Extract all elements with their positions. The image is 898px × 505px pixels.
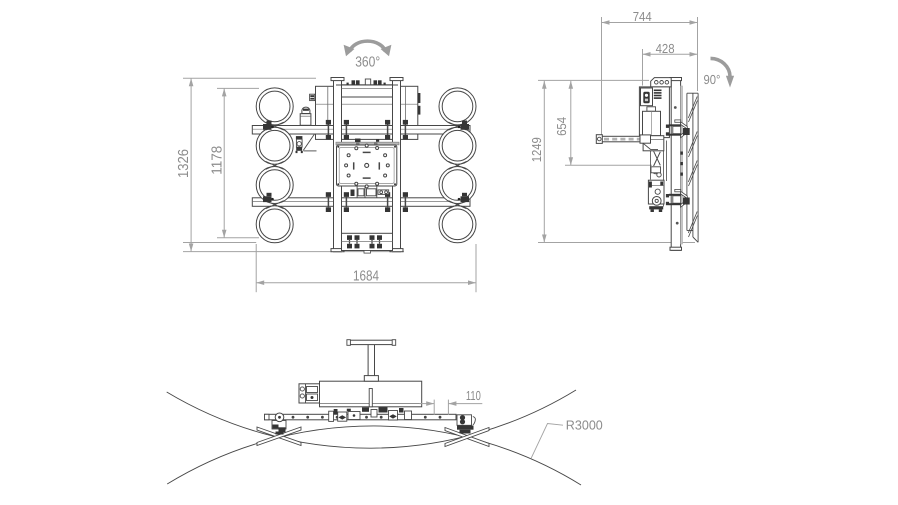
svg-text:1684: 1684 xyxy=(353,268,379,284)
svg-text:744: 744 xyxy=(633,9,652,24)
svg-text:428: 428 xyxy=(656,41,675,56)
svg-text:R3000: R3000 xyxy=(566,418,603,433)
svg-text:110: 110 xyxy=(466,388,481,403)
svg-text:1326: 1326 xyxy=(176,149,192,178)
svg-text:90°: 90° xyxy=(704,72,721,87)
svg-text:1178: 1178 xyxy=(210,146,226,175)
svg-text:654: 654 xyxy=(554,117,569,136)
svg-text:1249: 1249 xyxy=(529,137,544,162)
svg-text:360°: 360° xyxy=(355,55,380,71)
